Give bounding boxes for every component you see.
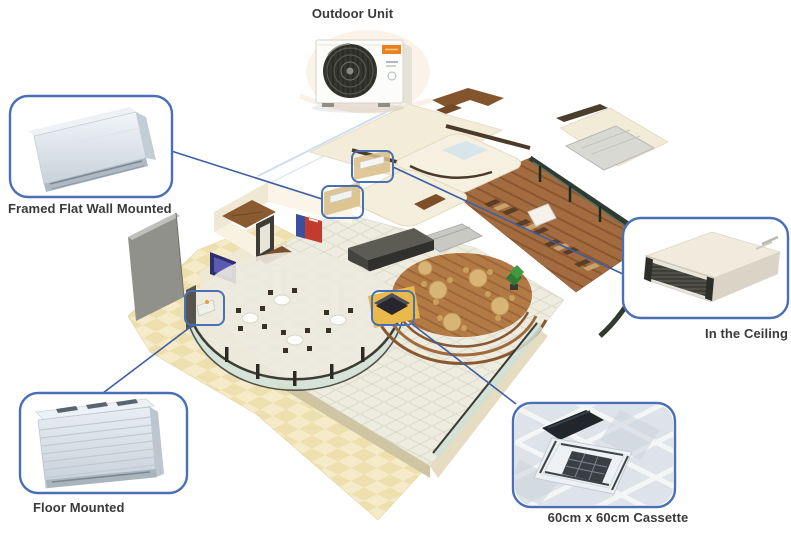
rooftop-right-block: [556, 104, 668, 170]
diagram-canvas: Outdoor Unit Framed Flat Wall Mounted In…: [0, 0, 791, 540]
outdoor-unit-image: [306, 30, 430, 114]
label-outdoor-unit: Outdoor Unit: [295, 6, 410, 21]
floor-mounted-unit-image: [36, 399, 164, 488]
floor-plan-artwork: [0, 0, 791, 540]
wall-unit-location: [324, 182, 360, 216]
connector-wall-mounted: [168, 150, 322, 199]
label-floor-mounted: Floor Mounted: [33, 500, 125, 515]
label-framed-flat-wall-mounted: Framed Flat Wall Mounted: [8, 201, 172, 216]
label-in-the-ceiling: In the Ceiling: [610, 326, 788, 341]
label-60cm-cassette: 60cm x 60cm Cassette: [528, 510, 708, 525]
